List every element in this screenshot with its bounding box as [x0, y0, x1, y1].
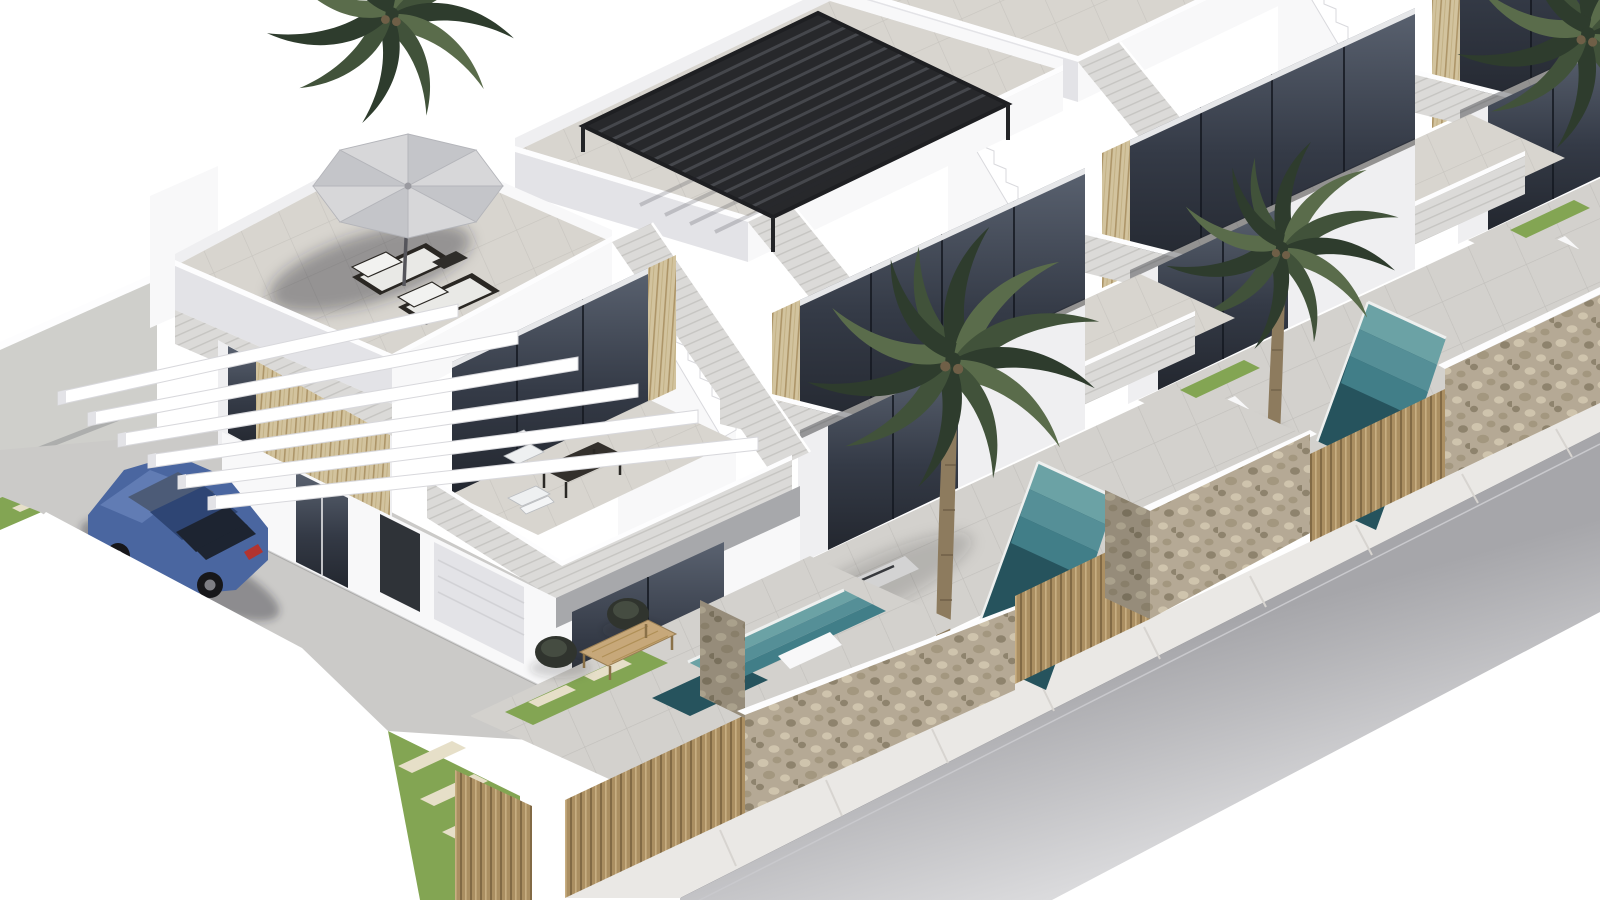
architectural-render: Photorealistic 3D rendering of a row of …: [0, 0, 1600, 900]
palm-tree-1: [266, 0, 521, 128]
stone-return-shade: [1105, 490, 1150, 619]
timber-slat-accent: [648, 255, 676, 402]
timber-gate: [455, 770, 532, 900]
render-canvas: [0, 0, 1600, 900]
car-rim: [205, 580, 216, 591]
